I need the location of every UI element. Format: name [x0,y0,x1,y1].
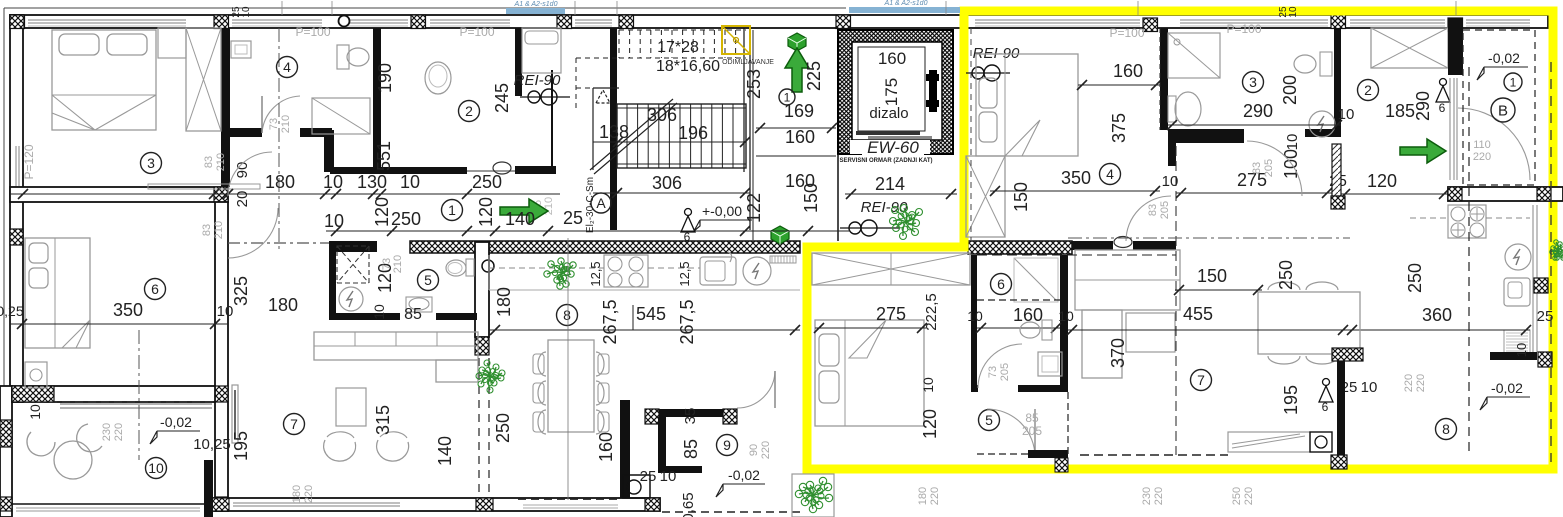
svg-text:210: 210 [215,153,227,171]
svg-text:160: 160 [596,432,616,462]
svg-text:10: 10 [1284,134,1301,151]
svg-text:150: 150 [1197,266,1227,286]
svg-text:6: 6 [151,281,159,297]
svg-text:180: 180 [494,287,514,317]
svg-text:10: 10 [324,211,344,231]
svg-text:267,5: 267,5 [677,299,697,344]
svg-text:P=100: P=100 [1109,26,1144,40]
svg-text:10: 10 [1338,106,1355,123]
svg-text:6: 6 [1439,101,1446,115]
svg-text:10: 10 [27,404,43,420]
svg-text:10: 10 [400,172,420,192]
svg-text:25: 25 [640,468,657,485]
svg-text:-0,02: -0,02 [728,467,760,483]
svg-text:250: 250 [493,413,513,443]
svg-text:375: 375 [1109,113,1129,143]
svg-text:306: 306 [647,105,677,125]
svg-text:267,5: 267,5 [600,299,620,344]
svg-text:6: 6 [684,230,691,244]
svg-text:10: 10 [660,468,677,485]
svg-text:2: 2 [1364,82,1372,98]
svg-text:1: 1 [1510,75,1517,89]
svg-text:1: 1 [448,202,456,218]
svg-text:10: 10 [371,304,387,320]
svg-text:73: 73 [268,118,280,130]
svg-text:4: 4 [283,59,291,75]
svg-text:7: 7 [290,416,298,432]
svg-text:220: 220 [113,423,125,441]
svg-text:10: 10 [148,460,164,476]
svg-text:20: 20 [234,191,251,208]
svg-text:ODIMLJAVANJE: ODIMLJAVANJE [722,59,774,66]
svg-text:290: 290 [1243,101,1273,121]
svg-text:9: 9 [723,437,731,453]
svg-text:350: 350 [1061,168,1091,188]
svg-text:-0,02: -0,02 [160,414,192,430]
svg-text:85: 85 [681,439,701,459]
svg-text:83: 83 [203,156,215,168]
svg-text:dizalo: dizalo [869,105,908,122]
svg-text:17*28: 17*28 [657,39,699,56]
svg-text:180: 180 [291,485,303,503]
svg-text:180: 180 [268,295,298,315]
svg-text:210: 210 [280,115,292,133]
svg-text:120: 120 [1367,171,1397,191]
svg-text:7: 7 [1197,372,1205,388]
svg-text:90: 90 [748,444,760,456]
svg-text:73: 73 [987,366,999,378]
svg-text:150: 150 [801,183,821,213]
svg-text:169: 169 [784,101,814,121]
svg-text:B: B [1498,102,1508,119]
svg-text:120: 120 [476,197,496,227]
svg-text:205: 205 [1022,424,1042,438]
svg-text:10: 10 [1058,308,1074,324]
svg-text:122: 122 [744,193,764,223]
svg-text:83: 83 [201,224,213,236]
svg-text:25: 25 [563,208,583,228]
svg-text:205: 205 [999,363,1011,381]
svg-text:138: 138 [599,122,629,142]
svg-text:6: 6 [1322,400,1329,414]
svg-text:8: 8 [1442,421,1450,437]
svg-text:220: 220 [1473,151,1491,163]
svg-text:P=100: P=100 [459,25,494,39]
svg-text:10: 10 [217,303,234,320]
svg-text:175: 175 [882,78,901,106]
svg-text:250: 250 [1231,487,1243,505]
svg-text:220: 220 [303,485,315,503]
svg-text:370: 370 [1108,338,1128,368]
svg-text:140: 140 [435,436,455,466]
svg-text:0,25: 0,25 [0,303,24,319]
svg-text:2: 2 [465,103,473,119]
svg-text:10: 10 [967,308,983,324]
svg-text:-0,02: -0,02 [1488,50,1520,66]
svg-text:325: 325 [231,276,251,306]
svg-text:8: 8 [563,307,571,323]
svg-text:-0,02: -0,02 [1491,380,1523,396]
svg-text:P=120: P=120 [22,144,36,179]
svg-text:220: 220 [760,441,772,459]
svg-text:A1 & A2-s1d0: A1 & A2-s1d0 [514,1,558,8]
svg-text:12,5: 12,5 [588,261,603,286]
svg-text:4: 4 [1106,166,1114,182]
svg-text:35: 35 [682,408,699,425]
svg-text:225: 225 [804,61,824,91]
svg-text:150: 150 [1011,182,1031,212]
svg-text:EW-60: EW-60 [867,138,919,157]
svg-text:360: 360 [1422,305,1452,325]
svg-text:220: 220 [1415,374,1427,392]
svg-text:160: 160 [1113,61,1143,81]
svg-text:205: 205 [1263,159,1275,177]
svg-text:275: 275 [876,304,906,324]
svg-text:10: 10 [1361,379,1378,396]
svg-text:220: 220 [1153,487,1165,505]
svg-text:10: 10 [1288,6,1299,18]
svg-text:230: 230 [1141,487,1153,505]
svg-text:545: 545 [636,304,666,324]
svg-text:12,5: 12,5 [677,261,692,286]
svg-text:160: 160 [878,49,906,68]
svg-text:230: 230 [101,423,113,441]
svg-text:3: 3 [1249,74,1257,90]
svg-text:190: 190 [375,63,395,93]
svg-text:10,25: 10,25 [193,436,231,453]
svg-text:+-0,00: +-0,00 [702,203,742,219]
svg-text:18*16,60: 18*16,60 [656,58,720,75]
svg-text:3: 3 [147,155,155,171]
svg-text:10: 10 [920,377,936,393]
svg-text:140: 140 [505,209,535,229]
svg-text:196: 196 [678,123,708,143]
svg-text:P=100: P=100 [295,25,330,39]
svg-text:130: 130 [357,172,387,192]
svg-text:455: 455 [1183,304,1213,324]
svg-text:10: 10 [1514,343,1529,357]
svg-text:315: 315 [373,405,393,435]
svg-text:6: 6 [997,276,1005,292]
svg-text:195: 195 [231,431,251,461]
svg-text:290: 290 [1413,91,1433,121]
svg-text:214: 214 [875,174,905,194]
svg-text:85: 85 [404,306,422,323]
svg-text:120: 120 [920,409,940,439]
svg-text:250: 250 [391,209,421,229]
svg-text:200: 200 [1280,75,1300,105]
svg-text:350: 350 [113,300,143,320]
svg-text:205: 205 [1159,201,1171,219]
svg-text:120: 120 [372,197,392,227]
svg-text:185: 185 [1385,101,1415,121]
svg-text:210: 210 [213,221,225,239]
svg-text:5: 5 [424,272,432,288]
svg-text:306: 306 [652,173,682,193]
svg-text:110: 110 [1473,139,1491,151]
svg-text:250: 250 [472,172,502,192]
svg-text:253: 253 [744,69,764,99]
svg-text:P=100: P=100 [1226,22,1261,36]
svg-text:245: 245 [492,83,512,113]
svg-text:195: 195 [1281,385,1301,415]
svg-text:250: 250 [1276,260,1296,290]
svg-text:250: 250 [1405,263,1425,293]
svg-text:10: 10 [241,6,252,18]
svg-text:160: 160 [785,127,815,147]
svg-text:A: A [596,195,606,211]
svg-text:210: 210 [392,255,404,273]
svg-text:180: 180 [265,172,295,192]
svg-text:0,65: 0,65 [680,492,697,517]
svg-text:551: 551 [374,141,394,171]
svg-text:REI-90: REI-90 [514,72,561,89]
svg-text:180: 180 [917,487,929,505]
svg-text:A1 & A2-s1d0: A1 & A2-s1d0 [884,0,928,7]
svg-text:SERVISNI ORMAR (ZADNJI KAT): SERVISNI ORMAR (ZADNJI KAT) [839,158,932,164]
svg-text:220: 220 [1403,374,1415,392]
svg-text:222,5: 222,5 [923,293,940,331]
svg-text:83: 83 [1251,162,1263,174]
svg-text:5: 5 [985,412,993,428]
svg-text:83: 83 [1147,204,1159,216]
svg-text:220: 220 [1243,487,1255,505]
svg-text:85: 85 [1025,411,1039,425]
svg-text:220: 220 [929,487,941,505]
